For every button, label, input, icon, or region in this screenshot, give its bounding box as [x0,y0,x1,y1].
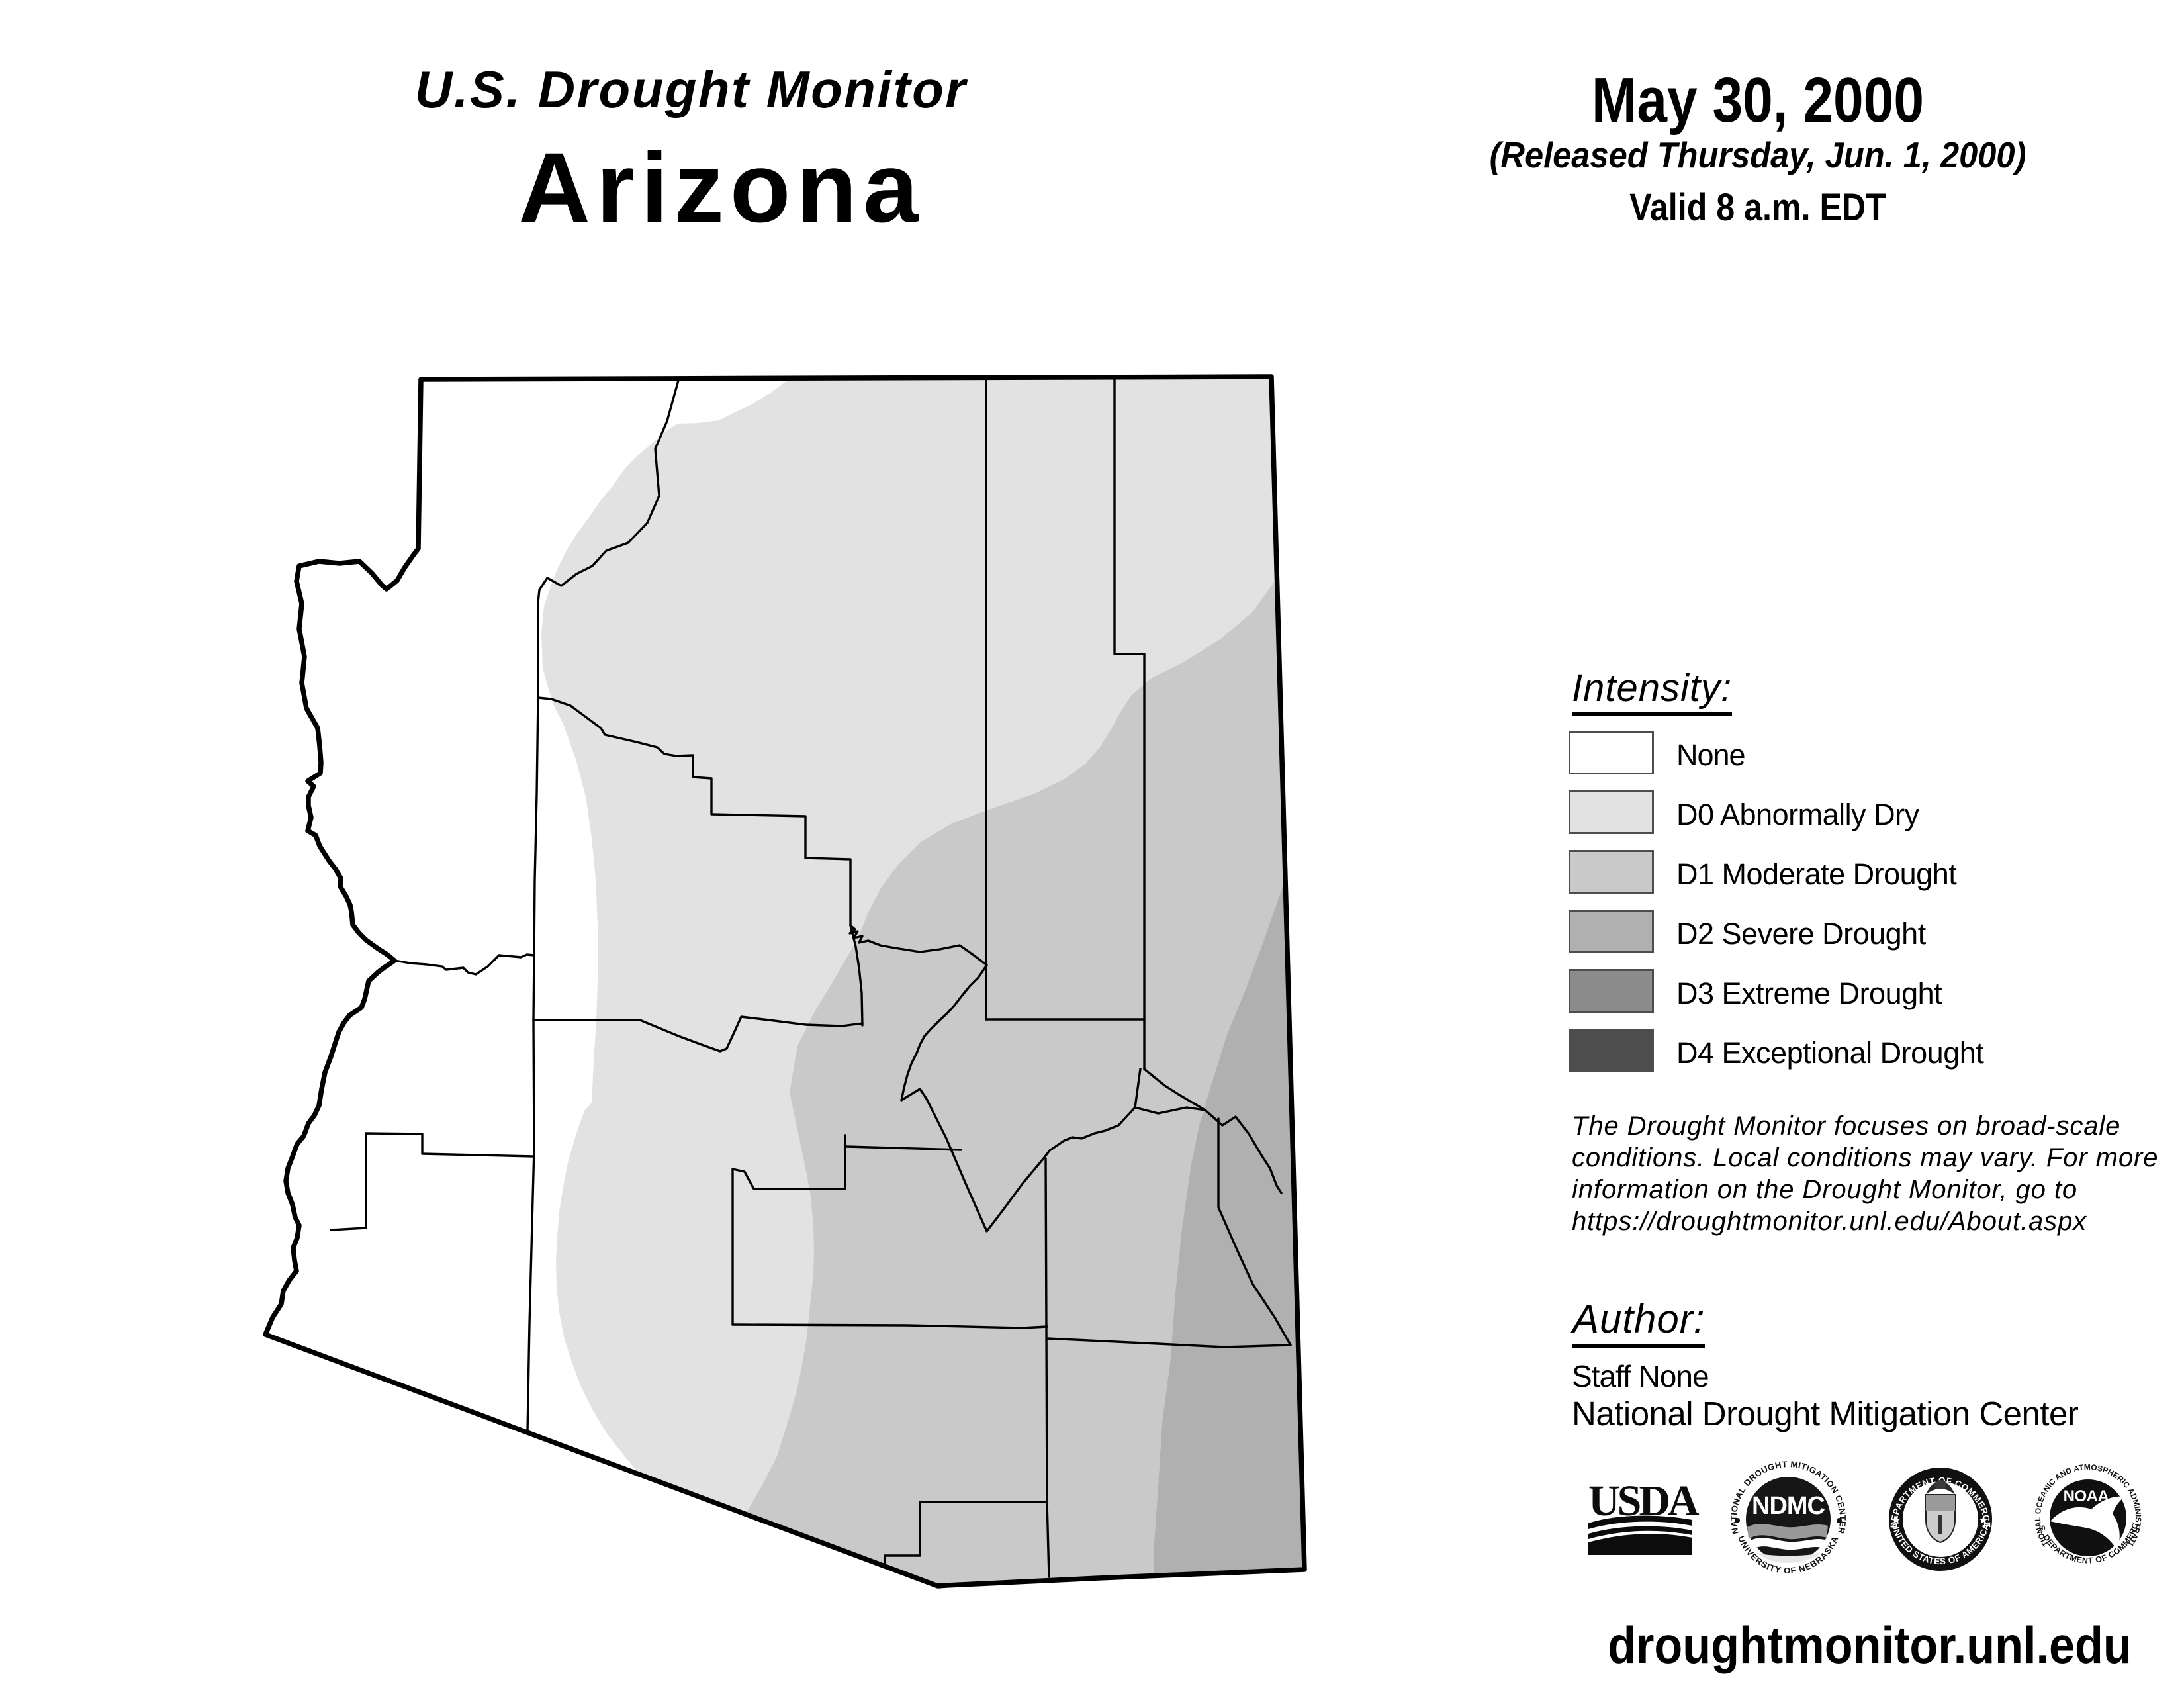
svg-text:★: ★ [1891,1513,1901,1526]
svg-text:★: ★ [1978,1513,1989,1526]
svg-text:NDMC: NDMC [1752,1492,1825,1520]
svg-text:NOAA: NOAA [2064,1487,2109,1505]
